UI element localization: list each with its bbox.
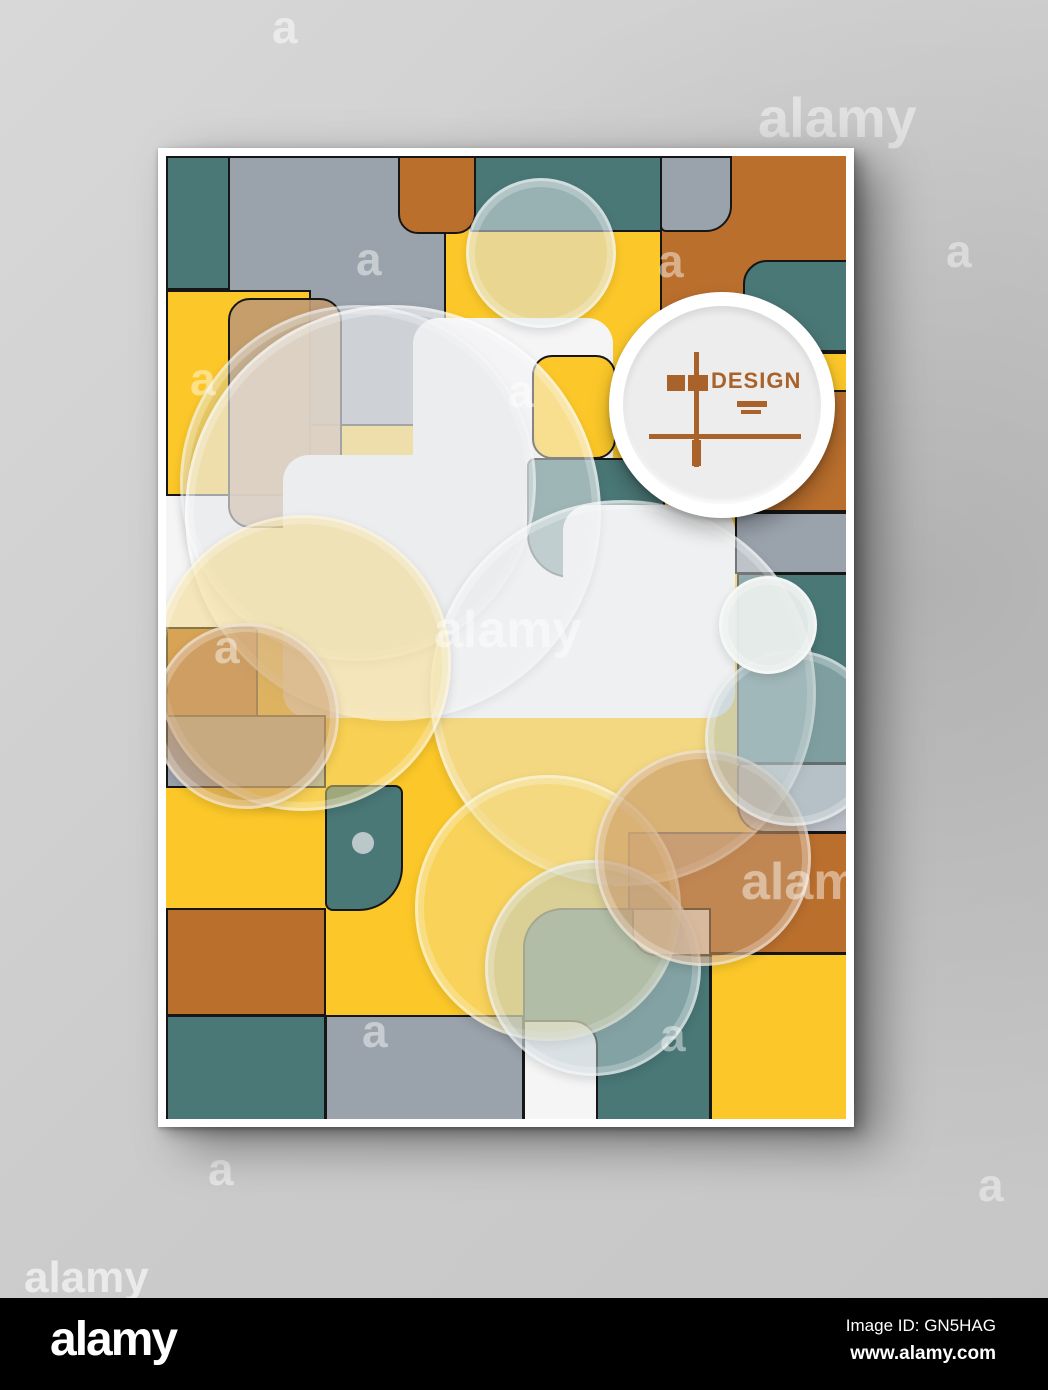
poster-canvas: DESIGN aaaaalamyaalamyaa xyxy=(166,156,846,1119)
logo-glyph-block-icon xyxy=(688,375,708,391)
design-badge-face: DESIGN xyxy=(623,306,821,504)
watermark-text: a xyxy=(658,238,684,284)
shape-orange-top-small xyxy=(398,156,476,234)
logo-vertical-foot-icon xyxy=(692,440,701,466)
logo-subtext-bar-icon xyxy=(737,401,767,407)
watermark-text: a xyxy=(272,4,298,50)
watermark-text: a xyxy=(508,368,534,414)
website-text: www.alamy.com xyxy=(846,1343,996,1365)
watermark-text: a xyxy=(362,1008,388,1054)
stock-photo-stage: aalamyaaaalamy DESIGN aaaaalamyaalamyaa … xyxy=(0,0,1048,1390)
logo-horizontal-line-icon xyxy=(649,434,801,439)
watermark-text: alamy xyxy=(434,604,581,656)
image-id-text: Image ID: GN5HAG xyxy=(846,1316,996,1336)
watermark-text: alamy xyxy=(741,856,846,908)
shape-orange-left-2 xyxy=(166,908,326,1016)
design-badge: DESIGN xyxy=(609,292,835,518)
circle-top-translucent xyxy=(466,178,616,328)
brand-title: DESIGN xyxy=(711,368,801,394)
watermark-text: a xyxy=(214,624,240,670)
alamy-logo: alamy xyxy=(50,1314,176,1367)
watermark-text: alamy xyxy=(24,1256,149,1300)
watermark-text: a xyxy=(660,1012,686,1058)
logo-subtext-bar-icon xyxy=(741,410,761,414)
watermark-text: a xyxy=(978,1162,1004,1208)
shape-gray-top-rounded xyxy=(660,156,732,232)
watermark-text: a xyxy=(208,1146,234,1192)
watermark-text: a xyxy=(356,236,382,282)
circle-teal-dot xyxy=(352,832,374,854)
poster: DESIGN aaaaalamyaalamyaa xyxy=(158,148,854,1127)
footer-bar: alamy Image ID: GN5HAG www.alamy.com xyxy=(0,1298,1048,1390)
shape-teal-top-left xyxy=(166,156,230,290)
footer-info: Image ID: GN5HAG www.alamy.com xyxy=(846,1316,996,1365)
watermark-text: a xyxy=(190,356,216,402)
shape-yellow-bottom-right xyxy=(710,953,846,1119)
watermark-text: alamy xyxy=(758,90,917,146)
logo-glyph-block-icon xyxy=(667,375,685,391)
watermark-text: a xyxy=(946,228,972,274)
shape-teal-left-3 xyxy=(166,1015,326,1119)
circle-small-white xyxy=(719,576,817,674)
shape-gray-bottom xyxy=(325,1015,524,1119)
